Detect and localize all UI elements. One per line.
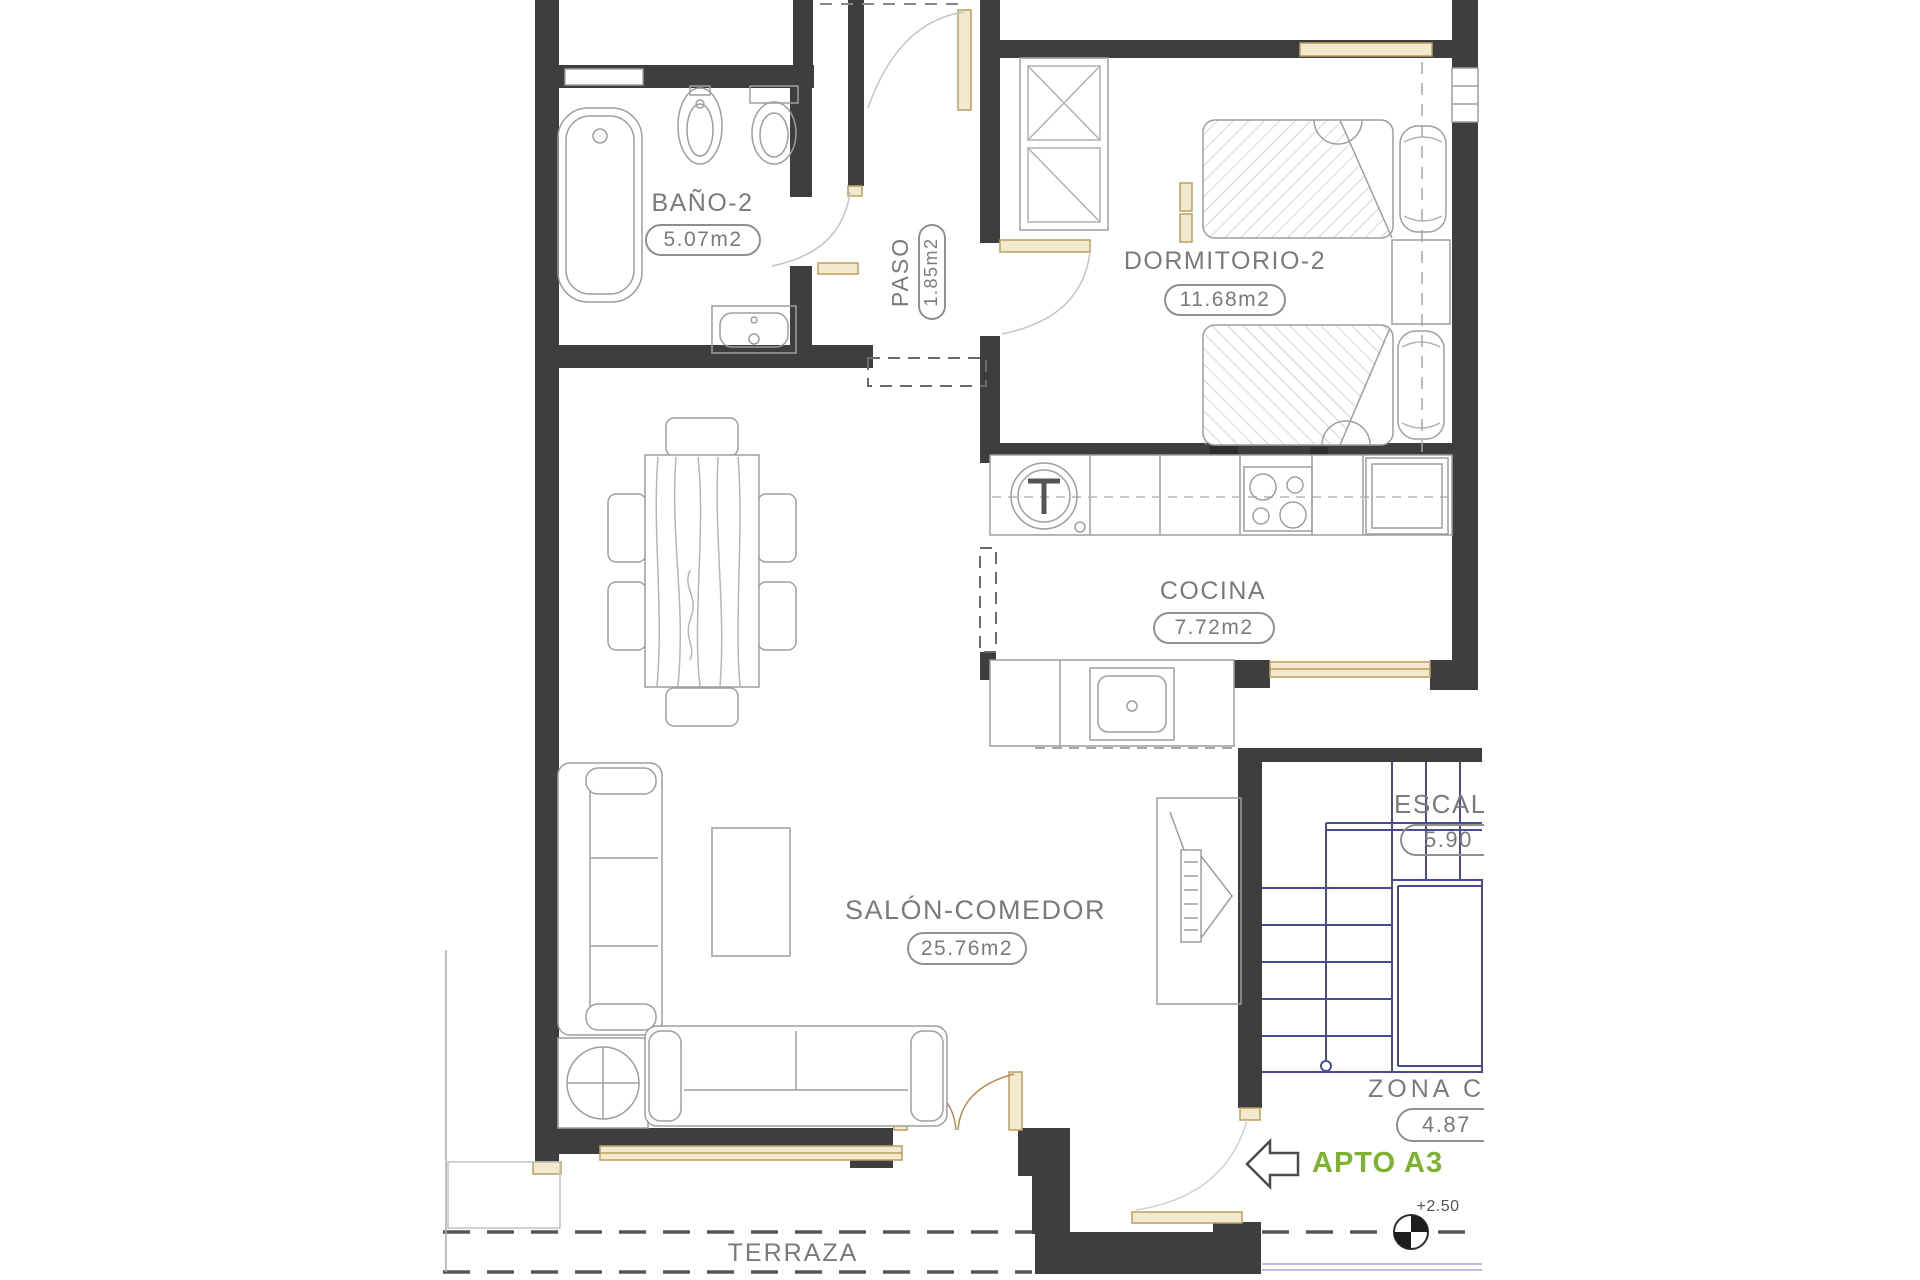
area-badge-paso: 1.85m2	[918, 224, 946, 320]
room-label-salon: SALÓN-COMEDOR	[845, 896, 1085, 926]
room-label-cocina: COCINA	[1158, 578, 1268, 606]
bathroom-fixtures	[558, 86, 798, 353]
area-badge-bano2: 5.07m2	[645, 224, 761, 256]
entrance-arrow-icon	[1247, 1141, 1298, 1187]
floor-plan-drawing	[0, 0, 1920, 1280]
room-label-zona: ZONA C	[1368, 1076, 1484, 1104]
area-badge-escalera: 5.90	[1400, 824, 1484, 856]
tv-unit	[1157, 798, 1241, 1004]
room-label-escalera-clip: ESCAL	[1394, 790, 1484, 820]
room-label-dormitorio2: DORMITORIO-2	[1120, 248, 1330, 276]
room-label-paso-text: PASO	[888, 237, 913, 307]
apartment-label: APTO A3	[1312, 1148, 1442, 1180]
level-annotation: +2.50	[1408, 1198, 1468, 1216]
area-badge-dormitorio2: 11.68m2	[1164, 284, 1286, 316]
area-badge-salon: 25.76m2	[907, 932, 1027, 965]
room-label-terraza: TERRAZA	[718, 1240, 868, 1268]
area-badge-escalera-clip: 5.90	[1400, 824, 1484, 858]
room-label-zona-clip: ZONA C	[1368, 1076, 1484, 1106]
sofa-area	[558, 763, 947, 1128]
room-label-bano2: BAÑO-2	[640, 190, 765, 218]
area-badge-cocina: 7.72m2	[1153, 612, 1275, 644]
room-label-paso: PASO 1.85m2	[881, 212, 953, 332]
room-label-escalera: ESCAL	[1394, 790, 1484, 819]
area-badge-zona: 4.87	[1396, 1108, 1484, 1142]
dining-set	[608, 418, 796, 726]
area-badge-zona-clip: 4.87	[1396, 1108, 1484, 1144]
floor-plan-page: BAÑO-2 5.07m2 PASO 1.85m2 DORMITORIO-2 1…	[0, 0, 1920, 1280]
level-marker-icon	[1394, 1215, 1428, 1249]
